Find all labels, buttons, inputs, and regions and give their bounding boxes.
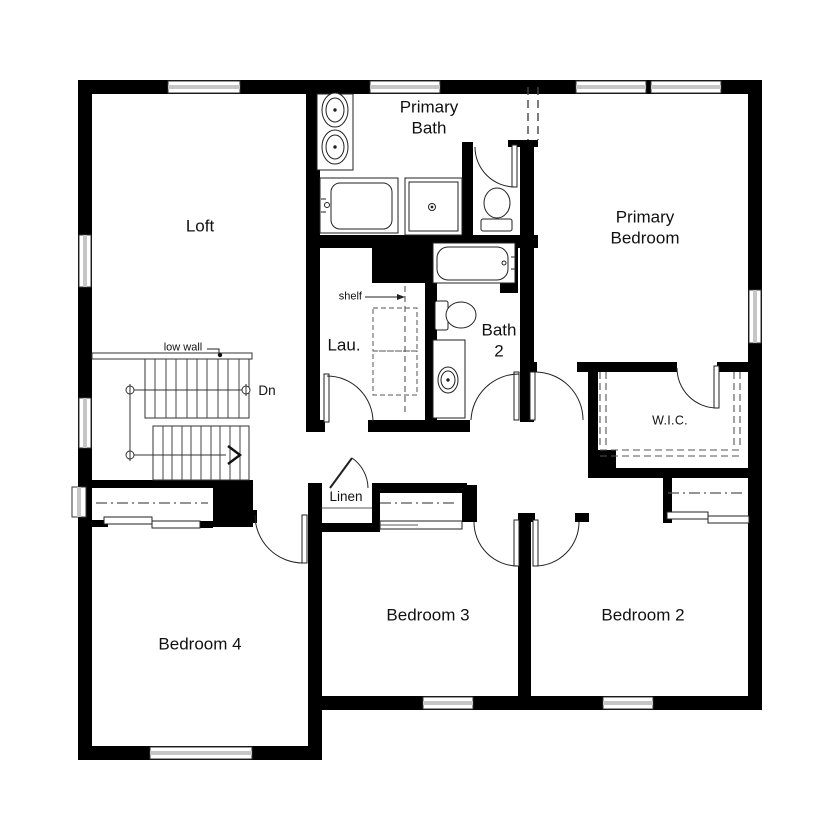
lowwall-leader-line (207, 349, 219, 353)
door-leaf-bedroom3 (514, 520, 519, 566)
wall-bedroom3-closet-top (372, 483, 467, 493)
shower-drain-dot (431, 206, 433, 208)
room-label-primary-bedroom: Primary Bedroom (611, 207, 680, 248)
bypass-door-bedroom4 (104, 517, 152, 524)
wall-linen-left (308, 483, 322, 523)
sink-drain (334, 146, 336, 148)
lowwall-leader-dot (218, 353, 222, 357)
toilet-bowl (484, 188, 510, 218)
door-arc-wic (677, 368, 717, 408)
wall-laundry-door-stub (306, 420, 325, 432)
room-label-linen: Linen (329, 489, 362, 505)
window (603, 697, 653, 709)
floor-plan: Loft Primary Bath Primary Bedroom Lau. B… (0, 0, 840, 840)
window (150, 747, 252, 759)
door-leaf-wic (714, 366, 719, 408)
bathtub-bath2-basin (437, 247, 508, 280)
wall-hall-center-post (518, 513, 535, 522)
bathtub-faucet (325, 203, 330, 208)
door-leaf-watercloset (512, 145, 517, 187)
wall-primarybedroom-south-a (520, 362, 537, 372)
room-label-bath2: Bath 2 (482, 320, 517, 361)
door-arc-watercloset (475, 147, 515, 187)
room-label-bedroom3: Bedroom 3 (386, 606, 469, 627)
window (370, 81, 440, 93)
door-leaf-laundry (324, 374, 329, 422)
shelf-leader-arrow (397, 294, 405, 300)
wall-wic-left (588, 362, 598, 452)
annotation-down: Dn (258, 383, 275, 399)
room-label-primary-bath: Primary Bath (400, 97, 459, 138)
room-label-bedroom2: Bedroom 2 (601, 606, 684, 627)
wall-exterior-bottom-right (308, 696, 762, 710)
window (576, 81, 646, 93)
wall-wic-bottom (610, 468, 762, 478)
wall-bedroom3-bedroom2 (518, 522, 531, 700)
annotation-shelf: shelf (339, 290, 362, 303)
door-arc-linen (352, 458, 368, 488)
door-leaf-linen (330, 458, 352, 488)
sink-drain (334, 109, 336, 111)
room-label-wic: W.I.C. (652, 413, 688, 428)
annotation-low-wall: low wall (164, 341, 203, 354)
wall-watercloset-left (462, 142, 473, 248)
door-arc-bedroom3 (474, 522, 518, 566)
wall-bedroom4-door (213, 510, 257, 523)
room-label-loft: Loft (186, 217, 214, 238)
bathtub2-faucet (502, 261, 506, 265)
wall-exterior-right (748, 80, 762, 710)
door-arc-bath2 (471, 374, 519, 420)
wall-stub-bedroom2-door (575, 513, 589, 522)
washer-outline (373, 308, 417, 351)
bypass-door-bedroom4 (152, 521, 200, 528)
door-leaf-bedroom2 (533, 520, 538, 566)
room-label-bedroom4: Bedroom 4 (158, 635, 241, 656)
wall-chase (372, 240, 425, 283)
door-leaf-bedroom4 (302, 515, 307, 563)
door-arc-bedroom2 (535, 522, 579, 566)
door-arc-laundry (327, 376, 373, 422)
window (79, 398, 91, 448)
wall-primarybedroom-south-c (717, 362, 762, 372)
sink-drain (447, 379, 449, 381)
door-leaf-primary-bedroom (530, 372, 535, 420)
dryer-outline (373, 351, 417, 395)
window (72, 487, 86, 517)
stairs (92, 353, 252, 480)
room-label-laundry: Lau. (327, 336, 360, 357)
window (168, 81, 240, 93)
bathtub-primary-basin (331, 183, 392, 229)
door-arc-primary-bedroom (535, 372, 583, 420)
window (79, 235, 91, 287)
window (749, 290, 761, 343)
wall-linen-bottom (308, 523, 380, 532)
toilet-tank (481, 219, 512, 231)
bypass-door-bedroom2 (667, 512, 708, 519)
wall-bedroom4-bedroom3 (308, 513, 322, 760)
door-leaf-bath2 (514, 372, 519, 420)
bypass-door-bedroom2 (708, 516, 749, 523)
door-arc-bedroom4 (255, 515, 303, 563)
toilet-bowl (446, 302, 476, 328)
wall-bath2-bottom (368, 420, 470, 432)
cased-opening-primary (528, 87, 538, 140)
window (423, 697, 473, 709)
window (651, 81, 721, 93)
